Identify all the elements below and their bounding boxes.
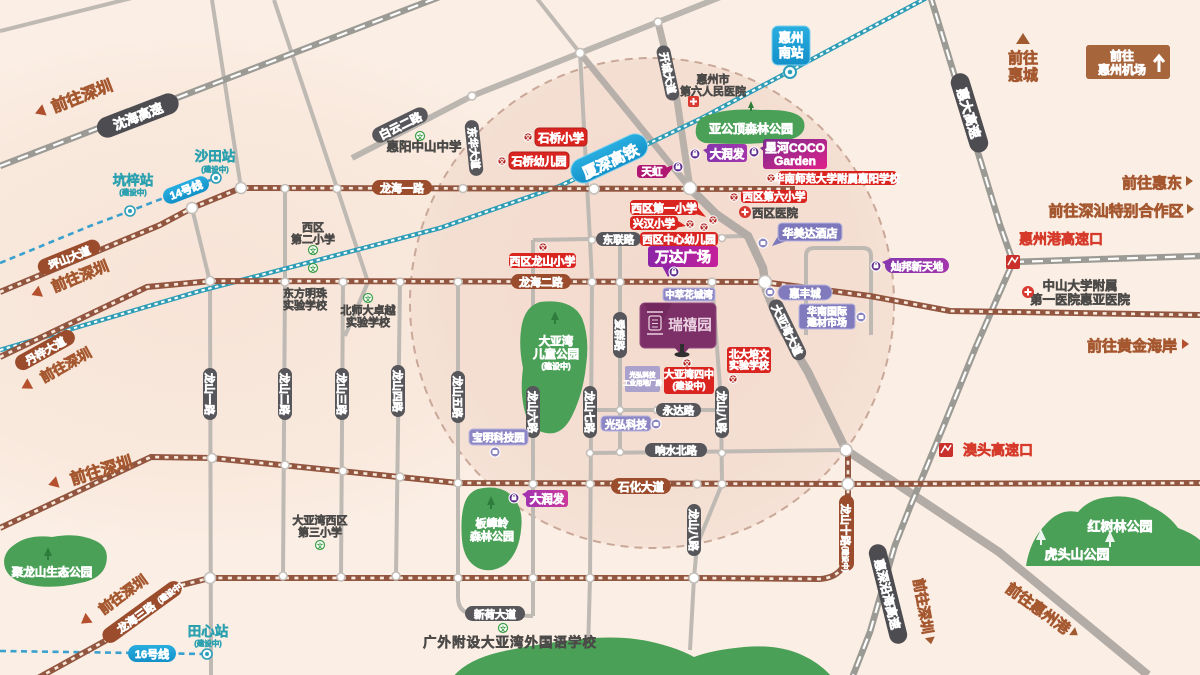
svg-text:华南师范大学附属惠阳学校: 华南师范大学附属惠阳学校 — [774, 172, 900, 185]
svg-text:文: 文 — [499, 624, 507, 633]
svg-text:惠州港高速口: 惠州港高速口 — [1019, 231, 1103, 247]
svg-text:石桥小学: 石桥小学 — [537, 131, 584, 145]
svg-text:惠州市: 惠州市 — [697, 72, 730, 86]
svg-text:龙山八路: 龙山八路 — [715, 390, 728, 433]
svg-text:红树林公园: 红树林公园 — [1087, 519, 1152, 534]
svg-text:实验学校: 实验学校 — [729, 359, 770, 372]
svg-text:(建设中): (建设中) — [841, 546, 850, 572]
svg-text:西区第一小学: 西区第一小学 — [631, 201, 697, 215]
svg-text:前往黄金海岸: 前往黄金海岸 — [1087, 337, 1177, 355]
svg-text:光弘科技: 光弘科技 — [604, 418, 647, 431]
svg-text:龙山五路: 龙山五路 — [451, 375, 464, 418]
svg-text:西区: 西区 — [302, 221, 324, 234]
svg-text:(建设中): (建设中) — [673, 380, 706, 391]
svg-text:响水北路: 响水北路 — [655, 444, 697, 457]
svg-text:大润发: 大润发 — [530, 492, 565, 506]
svg-text:惠州: 惠州 — [778, 30, 803, 45]
svg-text:东联路: 东联路 — [603, 233, 635, 246]
svg-text:板嶂岭: 板嶂岭 — [476, 516, 509, 530]
svg-text:大亚湾四中: 大亚湾四中 — [664, 368, 714, 381]
svg-text:大亚湾: 大亚湾 — [539, 334, 574, 348]
svg-text:实验学校: 实验学校 — [346, 315, 391, 329]
svg-text:龙山二路: 龙山二路 — [278, 372, 291, 415]
svg-text:龙海二路: 龙海二路 — [518, 275, 564, 289]
svg-text:华美达酒店: 华美达酒店 — [783, 226, 838, 240]
svg-text:西区龙山小学: 西区龙山小学 — [510, 254, 576, 268]
svg-text:永达路: 永达路 — [662, 404, 695, 417]
svg-text:文: 文 — [309, 246, 317, 255]
svg-text:华南国际: 华南国际 — [807, 305, 847, 318]
svg-text:儿童公园: 儿童公园 — [532, 347, 579, 361]
svg-text:惠城: 惠城 — [1008, 66, 1038, 84]
svg-text:前往: 前往 — [1110, 48, 1134, 63]
svg-text:实验学校: 实验学校 — [283, 298, 328, 312]
svg-text:石化大道: 石化大道 — [617, 480, 664, 494]
svg-text:南站: 南站 — [778, 45, 804, 60]
svg-text:聚龙山生态公园: 聚龙山生态公园 — [11, 565, 93, 579]
svg-text:第六人民医院: 第六人民医院 — [680, 84, 746, 98]
svg-text:文: 文 — [316, 541, 324, 550]
svg-text:惠阳中山中学: 惠阳中山中学 — [386, 139, 462, 154]
svg-text:虎头山公园: 虎头山公园 — [1044, 547, 1109, 562]
svg-text:工业用地厂房: 工业用地厂房 — [623, 378, 663, 387]
svg-text:广外附设大亚湾外国语学校: 广外附设大亚湾外国语学校 — [423, 634, 597, 650]
svg-text:中山大学附属: 中山大学附属 — [1042, 278, 1117, 293]
svg-text:惠州机场: 惠州机场 — [1098, 62, 1146, 77]
svg-text:(建设中): (建设中) — [194, 638, 222, 648]
svg-text:北师大卓越: 北师大卓越 — [341, 303, 397, 317]
svg-text:前往深汕特别合作区: 前往深汕特别合作区 — [1048, 202, 1183, 220]
svg-text:沙田站: 沙田站 — [195, 148, 236, 164]
svg-text:西区中心幼儿园: 西区中心幼儿园 — [642, 233, 716, 246]
svg-text:龙山八路: 龙山八路 — [687, 508, 700, 551]
svg-text:第三小学: 第三小学 — [298, 525, 342, 539]
svg-text:大亚湾西区: 大亚湾西区 — [293, 513, 348, 527]
svg-text:龙山十路: 龙山十路 — [839, 503, 852, 546]
svg-text:中萃花城湾: 中萃花城湾 — [665, 289, 713, 301]
svg-text:森林公园: 森林公园 — [470, 529, 514, 543]
svg-text:北大培文: 北大培文 — [729, 348, 770, 361]
svg-text:宝明科技园: 宝明科技园 — [472, 431, 525, 444]
svg-text:光弘科技: 光弘科技 — [629, 370, 657, 379]
svg-text:文: 文 — [364, 294, 372, 303]
svg-text:西区医院: 西区医院 — [752, 206, 798, 220]
svg-text:兴汉小学: 兴汉小学 — [633, 217, 675, 230]
svg-text:龙山七路: 龙山七路 — [583, 390, 596, 433]
svg-text:龙山四路: 龙山四路 — [391, 369, 404, 412]
svg-text:澳头高速口: 澳头高速口 — [963, 442, 1033, 458]
svg-text:龙山六路: 龙山六路 — [526, 390, 539, 433]
svg-text:文: 文 — [309, 264, 317, 273]
svg-text:西区第六小学: 西区第六小学 — [743, 190, 806, 203]
svg-text:龙山一路: 龙山一路 — [203, 372, 216, 415]
svg-text:第一医院惠亚医院: 第一医院惠亚医院 — [1030, 292, 1131, 307]
svg-text:天虹: 天虹 — [642, 165, 663, 178]
svg-text:石桥幼儿园: 石桥幼儿园 — [511, 154, 567, 168]
svg-text:坑梓站: 坑梓站 — [113, 172, 154, 188]
svg-text:万达广场: 万达广场 — [654, 249, 711, 265]
svg-text:爱群路: 爱群路 — [613, 319, 626, 351]
svg-text:瑞禧园: 瑞禧园 — [668, 316, 712, 334]
svg-text:建材市场: 建材市场 — [806, 316, 847, 329]
svg-text:田心站: 田心站 — [188, 623, 229, 639]
svg-text:前往惠东: 前往惠东 — [1122, 174, 1182, 192]
svg-text:东方明珠: 东方明珠 — [283, 286, 328, 300]
svg-text:星河COCO: 星河COCO — [765, 140, 825, 155]
svg-text:龙海一路: 龙海一路 — [379, 181, 425, 195]
svg-text:前往: 前往 — [1008, 49, 1038, 67]
svg-text:龙山三路: 龙山三路 — [335, 372, 348, 415]
svg-text:惠丰城: 惠丰城 — [789, 287, 821, 300]
svg-text:(建设中): (建设中) — [119, 187, 147, 197]
svg-text:新荷大道: 新荷大道 — [474, 608, 516, 621]
svg-text:亚公顶森林公园: 亚公顶森林公园 — [709, 121, 793, 136]
svg-text:第二小学: 第二小学 — [291, 232, 335, 246]
svg-text:大润发: 大润发 — [710, 147, 745, 161]
svg-text:Garden: Garden — [774, 154, 816, 168]
svg-text:(建设中): (建设中) — [541, 361, 571, 371]
svg-text:16号线: 16号线 — [135, 647, 169, 661]
svg-text:灿邦新天地: 灿邦新天地 — [891, 260, 944, 273]
